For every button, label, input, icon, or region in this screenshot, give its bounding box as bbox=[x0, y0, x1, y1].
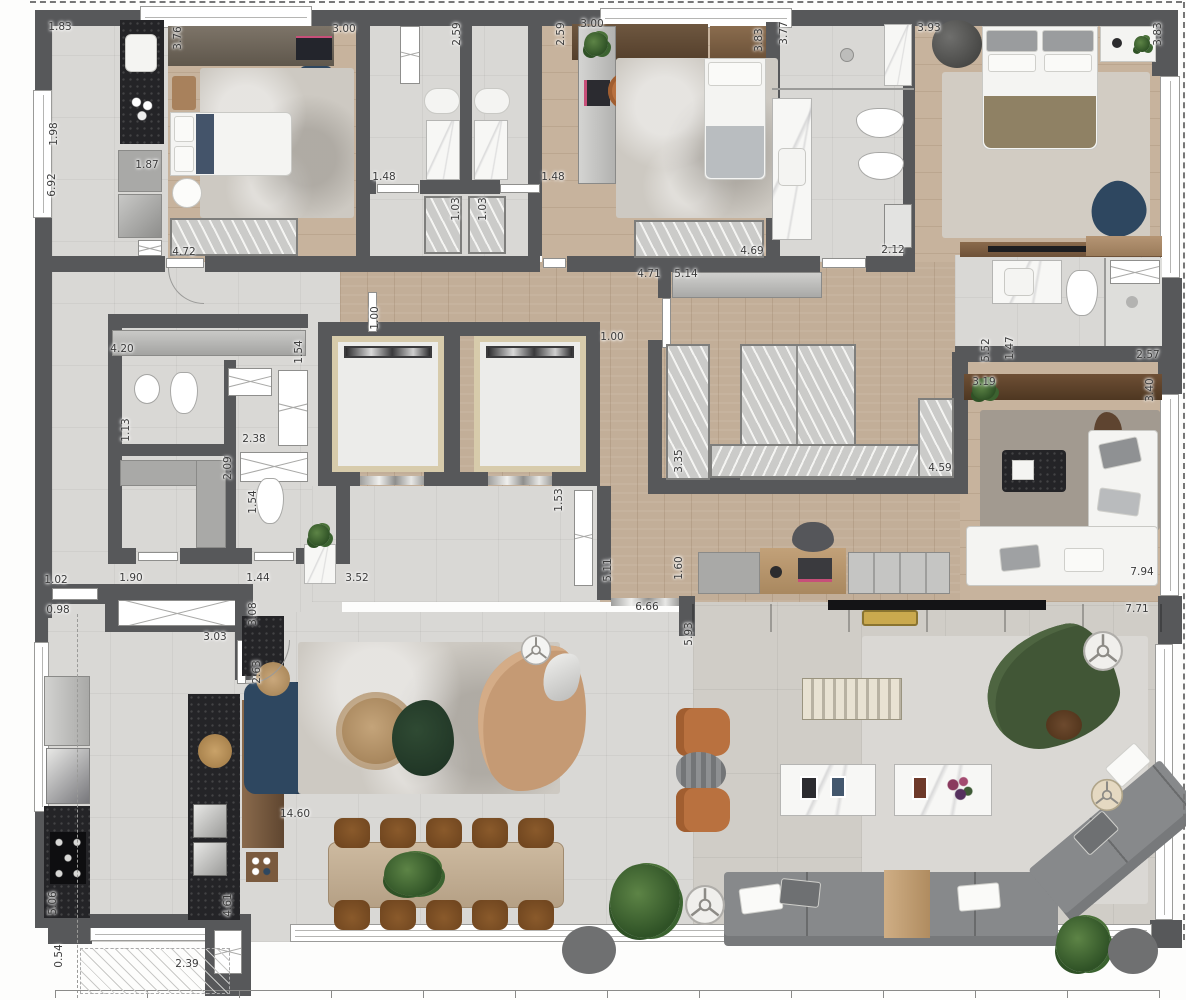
dimension-label: 1.48 bbox=[541, 172, 564, 183]
dimension-label: 0.98 bbox=[46, 605, 69, 616]
dimension-label: 2.09 bbox=[223, 456, 234, 479]
dimension-label: 1.13 bbox=[121, 418, 132, 441]
dimension-label: 1.98 bbox=[49, 122, 60, 145]
dimension-label: 2.63 bbox=[252, 660, 263, 683]
dimension-label: 4.20 bbox=[110, 344, 133, 355]
dimension-label: 5.93 bbox=[684, 622, 695, 645]
dimension-label: 3.00 bbox=[332, 24, 355, 35]
dimension-label: 6.66 bbox=[635, 602, 658, 613]
floor-plan: 1.833.763.002.592.593.003.833.773.933.83… bbox=[0, 0, 1186, 1000]
dimension-label: 14.60 bbox=[280, 809, 310, 820]
dimension-label: 4.72 bbox=[172, 247, 195, 258]
dimension-labels-layer: 1.833.763.002.592.593.003.833.773.933.83… bbox=[0, 0, 1186, 1000]
dimension-label: 5.52 bbox=[981, 338, 992, 361]
dimension-label: 3.40 bbox=[1145, 378, 1156, 401]
dimension-label: 3.35 bbox=[674, 449, 685, 472]
dimension-label: 3.03 bbox=[203, 632, 226, 643]
dimension-label: 3.77 bbox=[779, 21, 790, 44]
dimension-label: 2.59 bbox=[556, 22, 567, 45]
dimension-label: 1.53 bbox=[554, 488, 565, 511]
dimension-label: 1.90 bbox=[119, 573, 142, 584]
dimension-label: 1.54 bbox=[248, 490, 259, 513]
dimension-label: 2.12 bbox=[881, 245, 904, 256]
dimension-label: 2.39 bbox=[175, 959, 198, 970]
dimension-label: 1.02 bbox=[44, 575, 67, 586]
dimension-label: 2.38 bbox=[242, 434, 265, 445]
dimension-label: 3.93 bbox=[917, 23, 940, 34]
dimension-label: 3.08 bbox=[248, 602, 259, 625]
dimension-label: 3.52 bbox=[345, 573, 368, 584]
dimension-label: 4.61 bbox=[223, 893, 234, 916]
dimension-label: 1.54 bbox=[294, 340, 305, 363]
dimension-label: 2.59 bbox=[452, 22, 463, 45]
dimension-label: 3.76 bbox=[173, 26, 184, 49]
dimension-label: 4.69 bbox=[740, 246, 763, 257]
dimension-label: 3.00 bbox=[580, 19, 603, 30]
dimension-label: 1.47 bbox=[1005, 336, 1016, 359]
dimension-label: 6.92 bbox=[47, 173, 58, 196]
dimension-label: 1.03 bbox=[451, 197, 462, 220]
dimension-label: 1.48 bbox=[372, 172, 395, 183]
dimension-label: 1.00 bbox=[370, 306, 381, 329]
dimension-label: 1.60 bbox=[674, 556, 685, 579]
dimension-label: 1.44 bbox=[246, 573, 269, 584]
dimension-label: 3.83 bbox=[754, 28, 765, 51]
dimension-label: 4.71 bbox=[637, 269, 660, 280]
dimension-label: 5.14 bbox=[674, 269, 697, 280]
dimension-label: 7.71 bbox=[1125, 604, 1148, 615]
dimension-label: 3.19 bbox=[972, 377, 995, 388]
dimension-label: 1.03 bbox=[478, 197, 489, 220]
dimension-label: 1.00 bbox=[600, 332, 623, 343]
dimension-label: 5.11 bbox=[603, 558, 614, 581]
dimension-label: 4.59 bbox=[928, 463, 951, 474]
dimension-label: 1.83 bbox=[48, 22, 71, 33]
dimension-label: 5.06 bbox=[48, 891, 59, 914]
dimension-label: 3.83 bbox=[1153, 22, 1164, 45]
dimension-label: 1.87 bbox=[135, 160, 158, 171]
dimension-label: 2.57 bbox=[1136, 350, 1159, 361]
dimension-label: 7.94 bbox=[1130, 567, 1153, 578]
dimension-label: 0.54 bbox=[54, 944, 65, 967]
